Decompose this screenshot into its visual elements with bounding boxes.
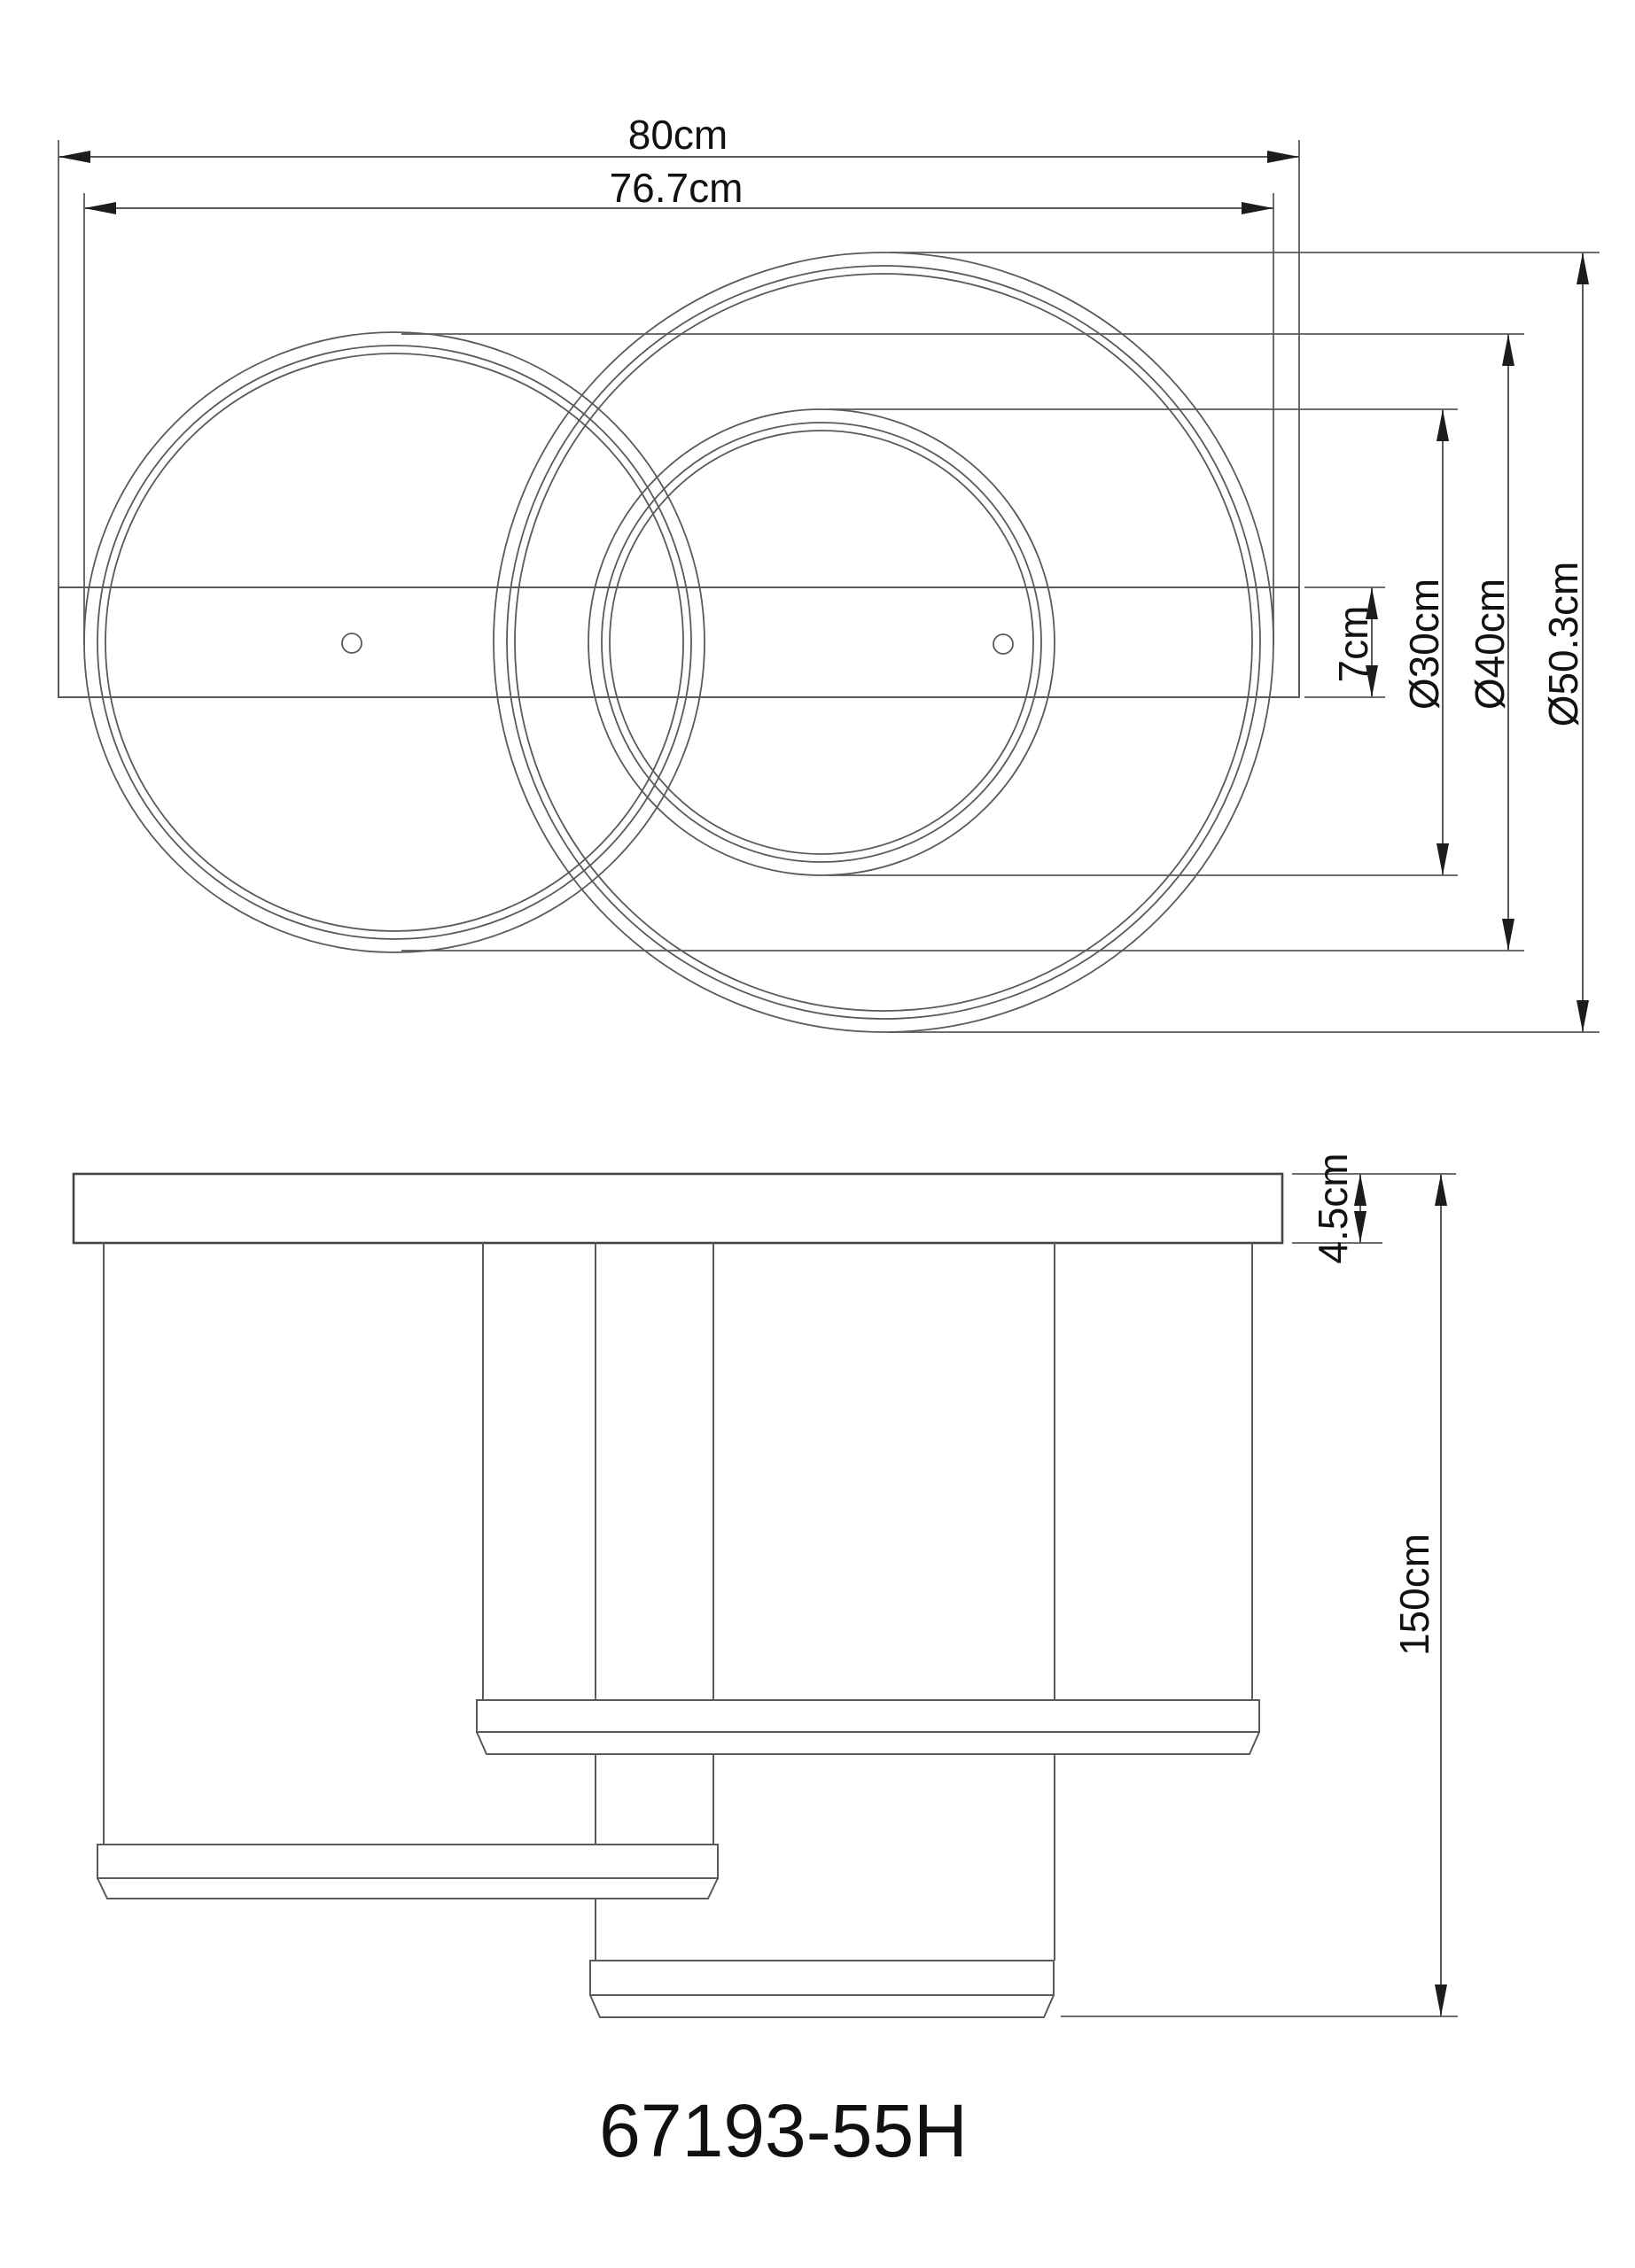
dim-80-arrow-left: [58, 151, 90, 163]
ring-30-inner: [610, 431, 1033, 854]
bar40-body: [97, 1845, 718, 1878]
bar30-body: [590, 1961, 1054, 1995]
ring-profile-bar-medium: [97, 1845, 718, 1899]
ring-vertical-edges: [104, 1243, 1252, 1961]
ring-40-inner: [105, 353, 683, 931]
label-ring-span: 76.7cm: [610, 165, 744, 211]
ring-50-middle: [507, 266, 1260, 1019]
dim-150-arrow-bottom: [1435, 1984, 1447, 2016]
dim-40-arrow-bottom: [1502, 919, 1514, 951]
label-ring-small: Ø30cm: [1401, 579, 1447, 710]
top-view-extension-lines: [58, 140, 1600, 1032]
bar50-body: [477, 1700, 1259, 1732]
bar30-lower-band: [590, 1995, 1054, 2017]
label-bar-height: 7cm: [1330, 606, 1376, 683]
dim-150-arrow-top: [1435, 1174, 1447, 1206]
dim-45-arrow-top: [1354, 1174, 1366, 1206]
dim-45-arrow-bottom: [1354, 1211, 1366, 1243]
top-view: 80cm 76.7cm 7cm Ø30cm Ø40cm Ø50.3cm: [58, 112, 1600, 1032]
label-ring-medium: Ø40cm: [1467, 579, 1513, 710]
side-view: 4.5cm 150cm: [74, 1153, 1458, 2017]
bar50-lower-band: [477, 1732, 1259, 1754]
label-total-height: 150cm: [1391, 1534, 1437, 1656]
top-view-dimension-lines: [58, 151, 1589, 1032]
dim-50-arrow-top: [1577, 252, 1589, 284]
label-ring-large: Ø50.3cm: [1540, 562, 1586, 727]
dim-30-arrow-top: [1436, 409, 1449, 441]
dim-767-arrow-right: [1242, 202, 1273, 214]
ring-large-50cm: [494, 252, 1273, 1032]
ring-50-outer: [494, 252, 1273, 1032]
ring-profile-bar-small: [590, 1961, 1054, 2017]
ring-30-middle: [602, 423, 1041, 862]
dim-50-arrow-bottom: [1577, 1000, 1589, 1032]
dim-80-arrow-right: [1267, 151, 1299, 163]
drawing-page: 80cm 76.7cm 7cm Ø30cm Ø40cm Ø50.3cm: [0, 0, 1635, 2268]
mounting-bar: [58, 587, 1299, 697]
bar40-lower-band: [97, 1878, 718, 1899]
technical-drawing: 80cm 76.7cm 7cm Ø30cm Ø40cm Ø50.3cm: [0, 0, 1635, 2268]
ring-50-inner: [515, 274, 1252, 1011]
ring-medium-40cm: [84, 332, 705, 952]
label-canopy-height: 4.5cm: [1310, 1153, 1356, 1263]
label-overall-width: 80cm: [628, 112, 728, 158]
ring-40-outer: [84, 332, 705, 952]
mounting-hole-right: [993, 634, 1013, 654]
ring-profile-bar-large: [477, 1700, 1259, 1754]
dim-40-arrow-top: [1502, 334, 1514, 366]
dim-30-arrow-bottom: [1436, 843, 1449, 875]
mounting-hole-left: [342, 633, 362, 653]
dim-767-arrow-left: [84, 202, 116, 214]
canopy: [74, 1174, 1282, 1243]
model-number: 67193-55H: [599, 2089, 968, 2172]
